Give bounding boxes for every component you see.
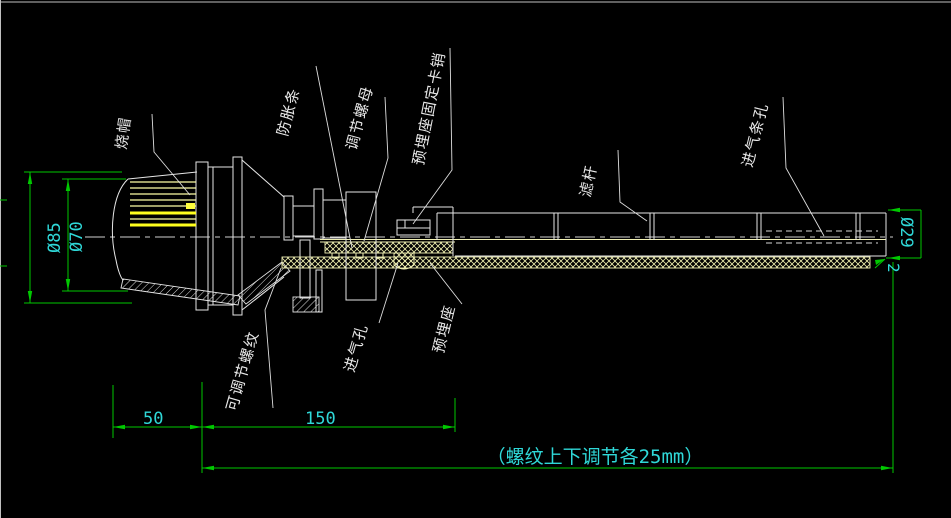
label-air-inlet-slots: 进气条孔 (739, 101, 771, 169)
part-labels: 烧帽 防胀条 调节螺母 预埋座固定卡销 滤杆 进气条孔 可调节螺纹 进气孔 预埋… (113, 50, 772, 413)
cap-heat-fins (130, 182, 196, 225)
dim-dia70: Ø70 (67, 221, 87, 252)
leader-adjustable-thread (265, 268, 281, 408)
seat-band (325, 242, 453, 253)
label-air-inlet-hole: 进气孔 (342, 322, 372, 374)
label-adjusting-nut: 调节螺母 (343, 84, 377, 152)
shaft-steps (284, 189, 346, 240)
label-fixing-pin: 预埋座固定卡销 (410, 50, 449, 167)
leader-anti-expansion-strip (316, 66, 352, 248)
dimension-lines (0, 172, 921, 473)
lower-mount (238, 240, 322, 312)
dim-dia85: Ø85 (45, 222, 65, 253)
tube-base-cup (293, 297, 319, 312)
cap-bottom-rim (121, 279, 240, 305)
leader-burner-cap (152, 114, 190, 195)
filter-rod-pipe (437, 213, 886, 256)
dimension-texts: Ø85 Ø70 Ø29 2 50 150 （螺纹上下调节各25mm） (45, 217, 916, 468)
label-adjustable-thread: 可调节螺纹 (224, 329, 263, 413)
label-filter-rod: 滤杆 (577, 163, 600, 199)
dim-150: 150 (305, 409, 336, 429)
dim-dia29: Ø29 (896, 217, 916, 248)
threaded-rod-assembly (282, 240, 886, 270)
label-anti-expansion-strip: 防胀条 (274, 86, 303, 138)
cad-drawing-canvas[interactable]: 烧帽 防胀条 调节螺母 预埋座固定卡销 滤杆 进气条孔 可调节螺纹 进气孔 预埋… (0, 0, 951, 518)
cap-fin-tab (186, 203, 195, 209)
leader-filter-rod (618, 150, 647, 221)
label-embedded-seat: 预埋座 (430, 303, 458, 355)
label-burner-cap: 烧帽 (113, 115, 134, 150)
burner-assembly-drawing: 烧帽 防胀条 调节螺母 预埋座固定卡销 滤杆 进气条孔 可调节螺纹 进气孔 预埋… (0, 0, 951, 518)
dim-thread-note: （螺纹上下调节各25mm） (487, 446, 704, 468)
leader-air-inlet-hole (379, 263, 398, 323)
dim-50: 50 (143, 409, 163, 429)
leader-embedded-seat (430, 263, 462, 304)
dim-wall-thickness: 2 (884, 263, 903, 273)
adjustable-thread-rod (282, 257, 870, 268)
leader-air-inlet-slots (783, 97, 824, 236)
